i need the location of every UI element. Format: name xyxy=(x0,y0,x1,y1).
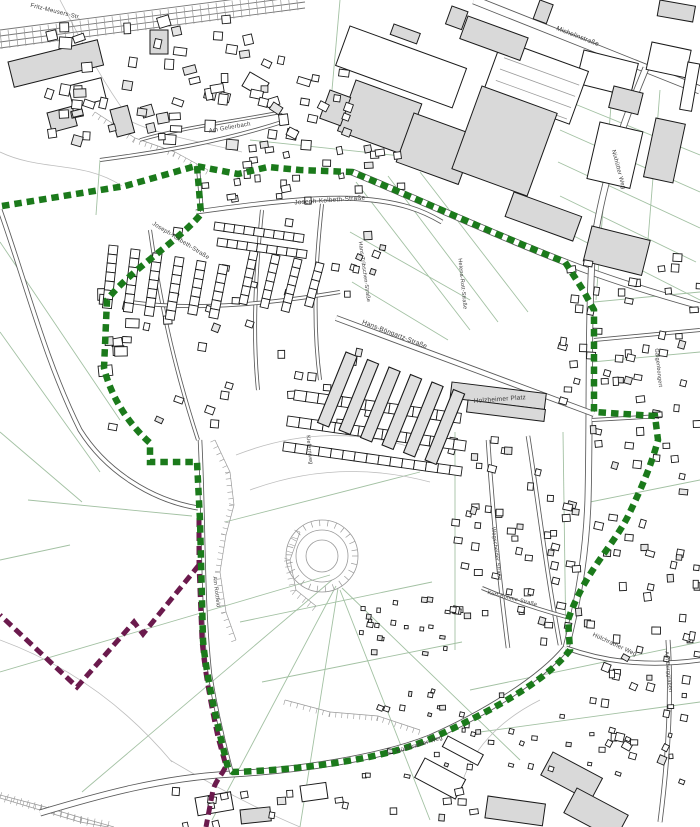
row-house-unit xyxy=(209,308,220,319)
row-house-unit xyxy=(287,416,300,428)
house xyxy=(122,337,131,343)
row-house-unit xyxy=(123,303,133,313)
row-house-strip xyxy=(281,258,302,312)
house xyxy=(47,128,56,138)
house xyxy=(74,89,87,98)
house xyxy=(580,344,587,352)
house xyxy=(390,808,397,815)
parcel-line xyxy=(240,582,432,622)
mound-tick xyxy=(325,586,326,592)
house xyxy=(595,440,602,447)
house xyxy=(509,728,515,734)
rail-tie xyxy=(24,28,26,46)
rail-tie xyxy=(192,6,194,24)
house xyxy=(527,483,533,491)
house xyxy=(669,754,673,759)
house xyxy=(108,124,116,132)
slope-tick xyxy=(229,633,234,635)
map-svg: Fritz-Meusers-Str.Am GelierbachMichelins… xyxy=(0,0,700,827)
mound-ring xyxy=(286,520,358,592)
house xyxy=(674,405,680,412)
house xyxy=(474,569,482,575)
slope-tick xyxy=(412,728,414,733)
house xyxy=(625,298,634,305)
house xyxy=(613,377,619,385)
house xyxy=(243,161,252,168)
house xyxy=(336,146,343,154)
slope-tick xyxy=(418,730,420,735)
house xyxy=(174,396,184,404)
building-gray xyxy=(644,118,686,183)
house xyxy=(355,186,362,194)
mound-tick xyxy=(287,546,293,548)
row-house-unit xyxy=(366,454,379,465)
row-house-unit xyxy=(256,244,267,253)
house xyxy=(615,771,621,776)
row-house-unit xyxy=(247,242,258,251)
house xyxy=(153,39,161,49)
house xyxy=(663,710,670,718)
house xyxy=(285,218,293,226)
house xyxy=(563,503,573,511)
row-house-unit xyxy=(144,306,154,316)
house xyxy=(443,646,447,650)
house xyxy=(665,288,672,295)
house xyxy=(60,23,69,32)
house xyxy=(599,747,605,752)
house xyxy=(234,178,241,185)
house xyxy=(182,822,188,827)
row-house-unit xyxy=(286,248,297,257)
house xyxy=(155,416,164,424)
building-gray xyxy=(240,807,271,824)
rail-tie xyxy=(32,27,34,45)
house xyxy=(443,798,451,805)
row-house-unit xyxy=(305,392,318,404)
house xyxy=(475,522,481,528)
house xyxy=(458,799,466,806)
slope-tick xyxy=(219,547,224,548)
slope-tick xyxy=(178,155,180,159)
mound-tick xyxy=(348,570,353,573)
house xyxy=(491,437,499,444)
slope-tick xyxy=(98,116,101,120)
house xyxy=(323,384,331,391)
house xyxy=(108,423,117,431)
house xyxy=(183,65,197,76)
house xyxy=(205,405,215,415)
house xyxy=(679,489,688,495)
house xyxy=(277,797,286,805)
slope-tick xyxy=(219,459,224,461)
row-house-unit xyxy=(342,450,355,461)
house xyxy=(587,621,595,629)
row-house-unit xyxy=(130,249,140,259)
house xyxy=(633,460,642,469)
house xyxy=(243,34,254,46)
building-gray xyxy=(110,105,135,137)
slope-tick xyxy=(226,516,231,517)
house xyxy=(115,347,128,357)
slope-tick xyxy=(227,492,232,493)
house xyxy=(658,266,665,272)
house xyxy=(240,791,248,799)
house xyxy=(454,788,464,796)
row-house-unit xyxy=(330,449,343,460)
slope-tick xyxy=(16,800,18,806)
rail-tie xyxy=(104,17,106,35)
rail-tie xyxy=(0,31,2,49)
house xyxy=(440,635,446,639)
boundary-green-path xyxy=(2,166,658,772)
house xyxy=(693,580,698,588)
house xyxy=(377,608,381,613)
house xyxy=(287,790,293,797)
rail-tie xyxy=(120,15,122,33)
mound-tick xyxy=(294,575,299,579)
street-label: Helena-Rott-Straße xyxy=(456,258,467,310)
house xyxy=(359,630,363,634)
house xyxy=(323,160,331,166)
house xyxy=(71,135,83,147)
house xyxy=(83,132,90,140)
house xyxy=(594,521,604,530)
house xyxy=(239,50,250,58)
slope-tick xyxy=(307,602,311,607)
house xyxy=(255,175,261,182)
house xyxy=(471,732,476,737)
rail-tie xyxy=(176,8,178,26)
house xyxy=(366,773,371,777)
house xyxy=(226,139,238,150)
building-gray xyxy=(485,796,545,826)
slope-tick xyxy=(290,702,291,707)
house xyxy=(429,625,434,629)
house xyxy=(668,733,672,738)
road-casing xyxy=(0,210,198,508)
mound-ring xyxy=(306,540,338,572)
row-house-unit xyxy=(106,263,116,273)
slope-tick xyxy=(27,800,29,806)
house xyxy=(300,98,309,106)
house xyxy=(335,797,343,803)
house xyxy=(673,253,682,261)
mound-tick xyxy=(317,586,318,592)
house xyxy=(364,231,372,240)
house xyxy=(556,602,566,610)
house xyxy=(372,250,381,259)
rail-tie xyxy=(248,0,250,16)
house xyxy=(213,32,222,41)
row-house-strip xyxy=(209,264,228,319)
house xyxy=(371,650,377,655)
row-house-unit xyxy=(224,223,235,232)
house xyxy=(125,319,139,328)
house xyxy=(676,555,682,561)
mound-tick xyxy=(339,581,342,586)
house xyxy=(504,447,512,454)
house xyxy=(682,693,687,697)
house xyxy=(383,706,390,712)
house xyxy=(434,752,439,756)
house xyxy=(459,712,464,717)
house xyxy=(575,608,581,616)
house xyxy=(469,809,478,815)
house xyxy=(339,69,350,77)
house xyxy=(636,427,643,435)
row-house-unit xyxy=(151,262,161,272)
house xyxy=(676,334,683,339)
slope-tick xyxy=(227,485,232,486)
house xyxy=(375,623,380,628)
street-label: Am Burggraben xyxy=(663,651,673,693)
house xyxy=(169,113,180,120)
house xyxy=(422,651,428,655)
house xyxy=(609,727,616,733)
house xyxy=(404,774,410,778)
house xyxy=(694,651,700,657)
contour-line xyxy=(0,152,122,186)
building-gray xyxy=(541,752,603,801)
building-gray xyxy=(390,24,420,44)
mound-tick xyxy=(303,525,306,530)
house xyxy=(158,133,165,140)
house xyxy=(548,550,554,556)
slope-tick xyxy=(229,504,234,505)
slope-tick xyxy=(221,534,226,535)
row-house-unit xyxy=(378,455,391,466)
house xyxy=(488,740,494,744)
rail-tie xyxy=(136,13,138,31)
house xyxy=(646,683,655,692)
slope-tick xyxy=(220,540,225,541)
house xyxy=(532,736,538,741)
house xyxy=(668,705,674,709)
row-house-unit xyxy=(214,222,225,231)
house xyxy=(210,420,219,428)
row-house-unit xyxy=(124,294,134,304)
house xyxy=(552,577,560,585)
house xyxy=(476,730,481,735)
house xyxy=(73,33,86,43)
house xyxy=(283,151,290,158)
house xyxy=(545,622,553,628)
mound-tick xyxy=(349,541,354,543)
house xyxy=(626,354,635,362)
house xyxy=(528,589,534,596)
mound-tick xyxy=(340,528,344,533)
row-house-unit xyxy=(437,464,450,475)
rail-tie xyxy=(40,26,42,44)
rail-tie xyxy=(184,7,186,25)
building-outline xyxy=(442,736,483,765)
house xyxy=(645,550,655,558)
house xyxy=(227,194,236,200)
slope-tick xyxy=(206,170,208,174)
slope-tick xyxy=(322,710,323,715)
rail-tie xyxy=(200,5,202,23)
row-house-unit xyxy=(126,285,136,295)
row-house-unit xyxy=(105,272,115,282)
row-house-unit xyxy=(253,228,264,237)
house xyxy=(210,83,224,93)
slope-tick xyxy=(284,558,290,560)
house xyxy=(189,76,201,84)
house xyxy=(379,245,385,251)
house xyxy=(408,691,412,696)
house xyxy=(281,184,291,192)
house xyxy=(564,387,572,392)
slope-tick xyxy=(388,720,390,725)
contour-line xyxy=(250,472,430,490)
building-gray xyxy=(564,788,628,827)
slope-tick xyxy=(184,158,186,162)
house xyxy=(548,766,554,772)
house xyxy=(420,627,424,631)
rail-tie xyxy=(208,4,210,22)
slope-tick xyxy=(223,528,228,529)
slope-tick xyxy=(406,726,408,731)
house xyxy=(454,537,463,544)
house xyxy=(278,350,285,358)
house xyxy=(482,610,488,615)
slope-line xyxy=(230,472,234,505)
house xyxy=(647,675,652,680)
row-house-unit xyxy=(449,465,462,476)
house xyxy=(171,26,181,36)
parcel-line xyxy=(0,545,70,560)
row-house-strip xyxy=(305,262,324,308)
row-house-unit xyxy=(147,288,157,298)
slope-tick xyxy=(289,584,295,585)
house xyxy=(143,323,150,331)
house xyxy=(220,391,229,400)
house xyxy=(619,582,626,590)
house xyxy=(462,728,465,732)
slope-tick xyxy=(150,144,152,149)
house xyxy=(550,561,558,570)
house xyxy=(528,763,534,769)
house xyxy=(471,454,477,461)
slope-tick xyxy=(297,703,298,708)
parcel-line xyxy=(332,0,340,90)
row-house-unit xyxy=(188,305,198,315)
parcel-line xyxy=(340,590,430,820)
slope-tick xyxy=(218,553,223,554)
house xyxy=(46,30,58,42)
house xyxy=(680,714,688,721)
house xyxy=(658,331,665,340)
house xyxy=(366,614,371,619)
house xyxy=(574,378,581,384)
road-surface xyxy=(594,330,700,340)
row-house-unit xyxy=(402,459,415,470)
row-house-unit xyxy=(293,233,304,242)
slope-line xyxy=(285,700,330,712)
house xyxy=(541,638,547,645)
house xyxy=(560,337,567,346)
parcel-line xyxy=(262,642,462,682)
row-house-unit xyxy=(237,241,248,250)
house xyxy=(496,509,503,516)
house xyxy=(560,714,565,718)
house xyxy=(614,549,621,556)
slope-tick xyxy=(145,142,147,147)
house xyxy=(590,698,596,704)
house xyxy=(667,574,674,582)
house xyxy=(439,814,445,821)
rail-tie xyxy=(240,0,242,18)
slope-tick xyxy=(228,498,233,499)
house xyxy=(444,763,449,767)
row-house-unit xyxy=(263,229,274,238)
house xyxy=(690,307,699,313)
house xyxy=(333,95,340,102)
parcel-line xyxy=(592,352,700,362)
house xyxy=(693,565,699,571)
house xyxy=(551,543,560,551)
house xyxy=(59,84,70,97)
house xyxy=(609,514,618,521)
house xyxy=(301,140,312,150)
house xyxy=(370,269,377,276)
house xyxy=(269,812,275,819)
house xyxy=(212,820,220,827)
house xyxy=(353,266,360,274)
house xyxy=(693,420,700,427)
row-house-unit xyxy=(305,297,315,308)
rail-tie xyxy=(232,1,234,19)
slope-tick xyxy=(231,640,236,642)
parcel-line xyxy=(225,472,420,522)
house xyxy=(249,145,257,152)
house xyxy=(220,793,228,800)
mound-ring xyxy=(296,530,348,582)
house xyxy=(202,183,209,189)
house xyxy=(452,519,460,526)
house xyxy=(615,355,623,362)
row-house-unit xyxy=(354,452,367,463)
slope-tick xyxy=(226,479,231,480)
house xyxy=(221,73,228,82)
house xyxy=(647,584,654,591)
house xyxy=(172,98,184,107)
row-house-unit xyxy=(318,447,331,458)
house xyxy=(476,463,482,469)
slope-tick xyxy=(297,594,301,599)
building-outline xyxy=(300,782,328,801)
house xyxy=(679,779,685,785)
house xyxy=(634,374,642,380)
house xyxy=(572,509,579,515)
house xyxy=(636,396,645,403)
rail-tie xyxy=(216,3,218,21)
house xyxy=(629,682,638,690)
slope-tick xyxy=(34,804,36,810)
house xyxy=(342,802,348,809)
slope-tick xyxy=(216,453,221,455)
slope-tick xyxy=(284,560,290,561)
house xyxy=(307,114,317,123)
house xyxy=(222,15,231,24)
house xyxy=(331,263,339,271)
house xyxy=(652,627,661,634)
house xyxy=(124,23,131,34)
house xyxy=(508,763,514,767)
house xyxy=(404,625,408,628)
house xyxy=(377,705,384,712)
house xyxy=(535,469,542,476)
